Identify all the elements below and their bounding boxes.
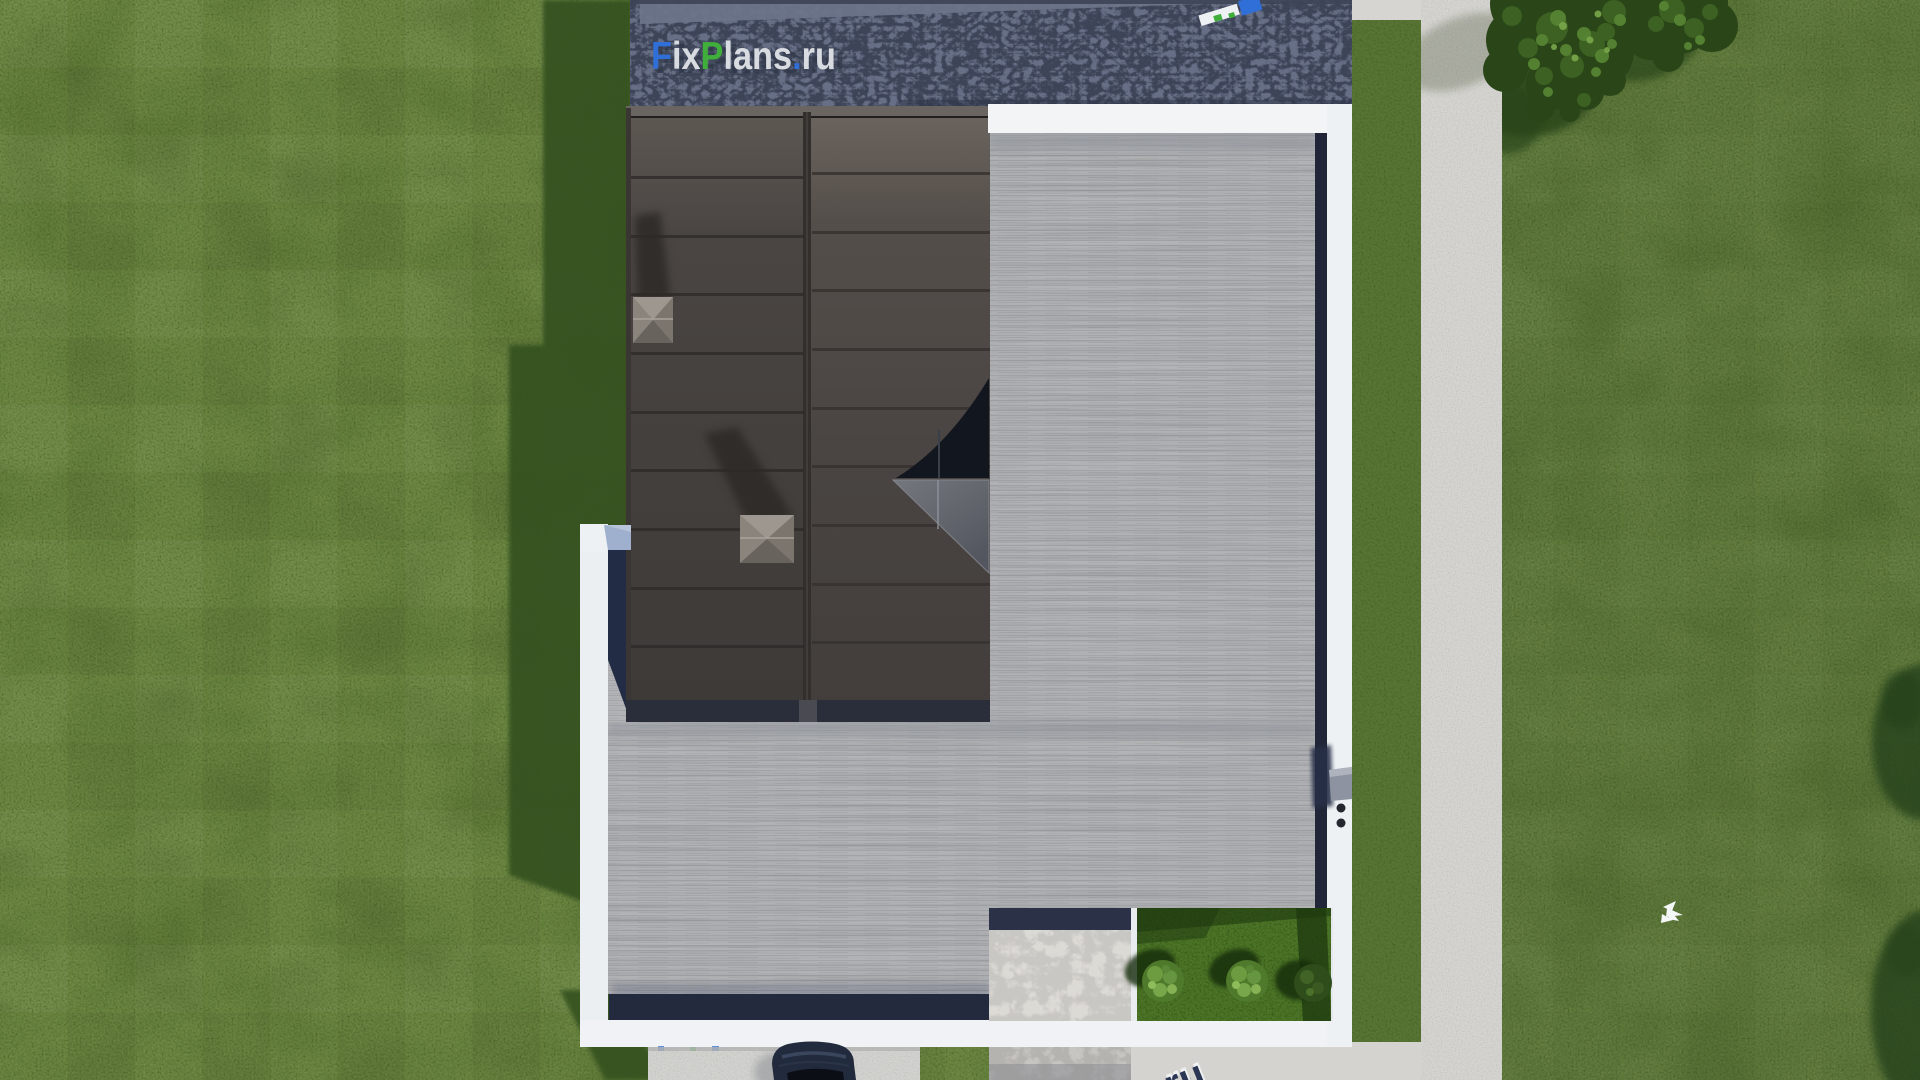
- svg-text:FixPlans.ru: FixPlans.ru: [651, 34, 836, 78]
